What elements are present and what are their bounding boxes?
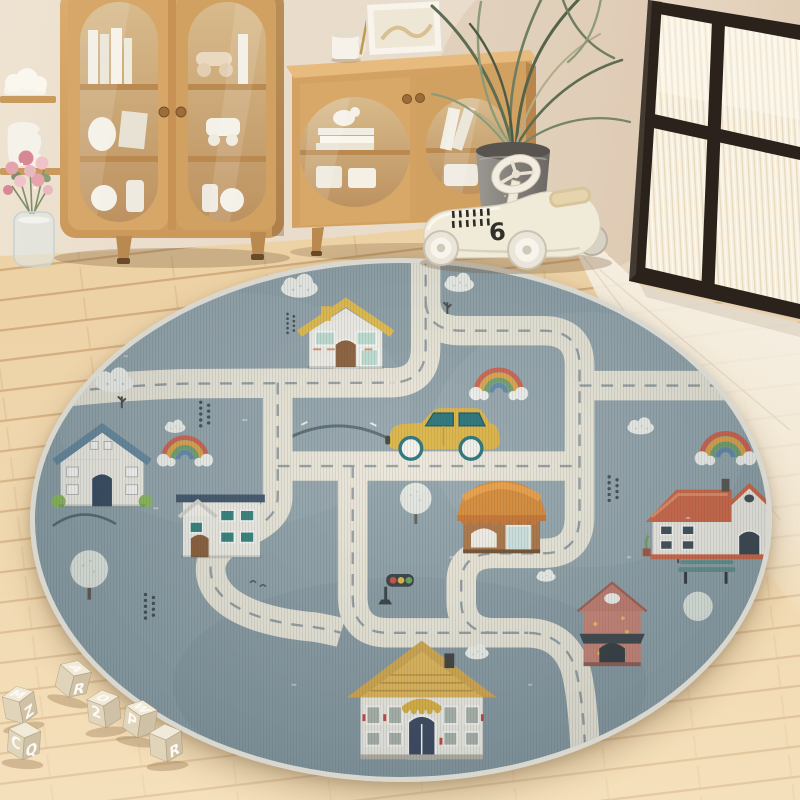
rear-wheel: [508, 231, 546, 269]
foreground-toys: 6 M Z: [0, 0, 800, 800]
front-wheel: [424, 231, 458, 265]
steering-wheel: [491, 153, 540, 195]
alphabet-blocks: M Z C Q A R: [0, 656, 189, 773]
playroom-scene: 6 M Z: [0, 0, 800, 800]
race-car-number: 6: [488, 217, 507, 246]
ride-on-toy-race-car: 6: [420, 153, 612, 274]
alphabet-block: O 2: [81, 688, 128, 739]
